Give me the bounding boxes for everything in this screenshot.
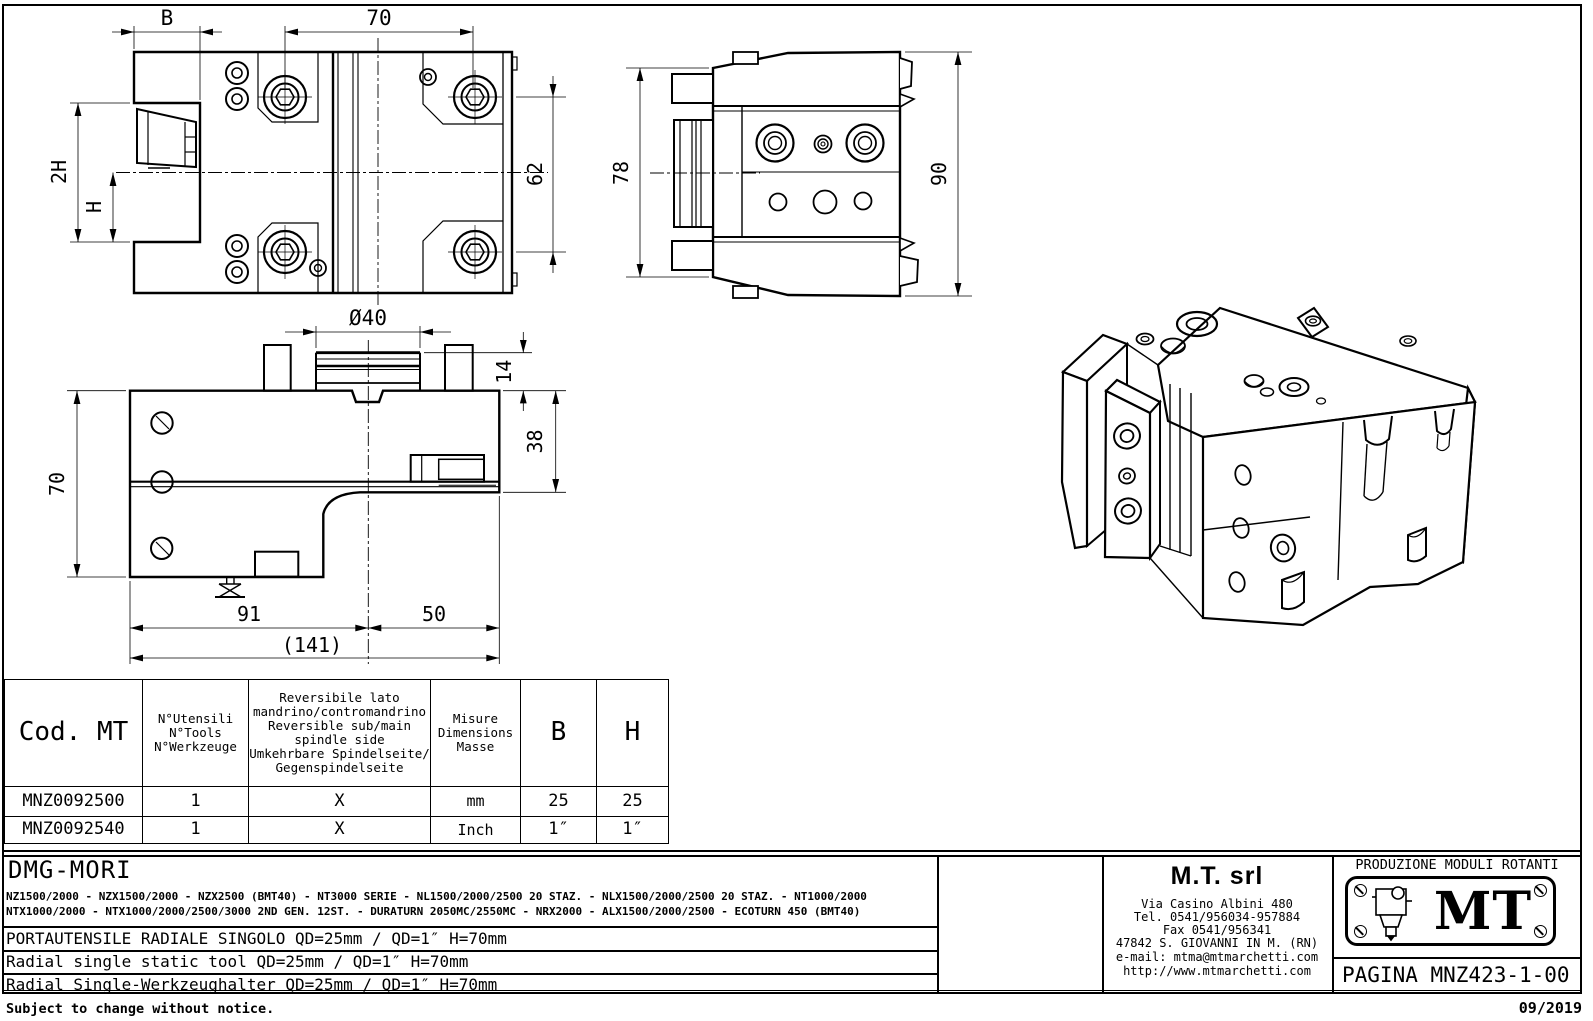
cell-h: 25 (597, 787, 669, 817)
production-label: PRODUZIONE MODULI ROTANTI (1334, 857, 1580, 873)
reversible-line: spindle side (249, 733, 430, 747)
cell-b: 25 (521, 787, 597, 817)
revision-date: 09/2019 (1450, 999, 1582, 1017)
cell-tools: 1 (143, 817, 249, 844)
logo-screw-icon (1354, 925, 1367, 938)
footer-note: Subject to change without notice. (6, 1001, 274, 1017)
socket-screw-icon (258, 70, 502, 279)
machine-list-line2: NTX1000/2000 - NTX1000/2000/2500/3000 2N… (6, 905, 860, 918)
cell-tools: 1 (143, 787, 249, 817)
cell-rev: X (249, 817, 431, 844)
side-view-outline (713, 52, 900, 296)
company-city: 47842 S. GIOVANNI IN M. (RN) (1102, 936, 1332, 950)
logo-screw-icon (1354, 884, 1367, 897)
dim-label-70: 70 (366, 6, 391, 30)
company-name: M.T. srl (1102, 862, 1332, 891)
col-header-b: B (521, 680, 597, 787)
iso-view (1030, 280, 1510, 650)
cell-cod: MNZ0092500 (5, 787, 143, 817)
side-holes (151, 412, 173, 559)
cell-cod: MNZ0092540 (5, 817, 143, 844)
company-fax: Fax 0541/956341 (1102, 923, 1332, 937)
reversible-line: mandrino/contromandrino (249, 705, 430, 719)
tools-line: N°Utensili (143, 712, 248, 726)
side-view: 78 90 (580, 10, 1000, 310)
dim-label-b: B (161, 6, 174, 30)
company-tel: Tel. 0541/956034-957884 (1102, 910, 1332, 924)
rotary-module-icon (1370, 883, 1414, 941)
clamp-pocket (411, 455, 496, 485)
dim-label-h: H (82, 201, 106, 213)
col-header-reversible: Reversibile lato mandrino/contromandrino… (249, 680, 431, 787)
dim-label-2h: 2H (47, 160, 71, 184)
measure-line: Masse (431, 740, 520, 754)
dimension-70 (285, 26, 473, 88)
tools-line: N°Tools (143, 726, 248, 740)
tools-line: N°Werkzeuge (143, 740, 248, 754)
cell-rev: X (249, 787, 431, 817)
adjust-screw-icon (215, 577, 245, 597)
cell-b: 1″ (521, 817, 597, 844)
dim-label-70-front: 70 (45, 472, 69, 496)
machine-list-line1: NZ1500/2000 - NZX1500/2000 - NZX2500 (BM… (6, 890, 867, 903)
logo-text: MT (1410, 881, 1556, 942)
dimension-70-front (67, 391, 126, 577)
iso-clamp-block (1105, 380, 1160, 558)
description-de: Radial Single-Werkzeughalter QD=25mm / Q… (6, 975, 497, 994)
dim-label-78: 78 (609, 161, 633, 185)
mt-logo: MT (1345, 876, 1556, 946)
dim-label-62: 62 (523, 162, 547, 186)
dim-label-38: 38 (523, 429, 547, 453)
top-view: B 70 2H H 62 (0, 0, 600, 320)
dim-label-dia40: Ø40 (349, 306, 387, 330)
cell-h: 1″ (597, 817, 669, 844)
iso-front-face (1203, 402, 1475, 625)
clamp-hooks (900, 58, 918, 286)
spec-table: Cod. MT N°Utensili N°Tools N°Werkzeuge R… (4, 679, 669, 844)
cell-unit: mm (431, 787, 521, 817)
reversible-line: Gegenspindelseite (249, 761, 430, 775)
page-number: PAGINA MNZ423-1-00 (1342, 963, 1570, 987)
dim-label-14: 14 (492, 360, 516, 384)
description-en: Radial single static tool QD=25mm / QD=1… (6, 952, 468, 971)
description-it: PORTAUTENSILE RADIALE SINGOLO QD=25mm / … (6, 929, 507, 948)
dimension-b (112, 26, 222, 100)
col-header-measure: Misure Dimensions Masse (431, 680, 521, 787)
dim-label-90: 90 (927, 162, 951, 186)
dim-label-50: 50 (422, 602, 446, 626)
cell-unit: Inch (431, 817, 521, 844)
customer-brand: DMG-MORI (8, 856, 132, 884)
measure-line: Misure (431, 712, 520, 726)
company-address: Via Casino Albini 480 (1102, 897, 1332, 911)
col-header-tools: N°Utensili N°Tools N°Werkzeuge (143, 680, 249, 787)
company-web: http://www.mtmarchetti.com (1102, 964, 1332, 978)
measure-line: Dimensions (431, 726, 520, 740)
front-view-outline (130, 391, 499, 577)
reversible-line: Reversibile lato (249, 691, 430, 705)
table-row: MNZ0092540 1 X Inch 1″ 1″ (5, 817, 669, 844)
reversible-line: Reversible sub/main (249, 719, 430, 733)
dim-label-141: (141) (282, 633, 342, 657)
front-view: Ø40 14 38 70 91 50 (141) (30, 300, 600, 680)
company-email: e-mail: mtma@mtmarchetti.com (1102, 950, 1332, 964)
col-header-h: H (597, 680, 669, 787)
wedge-clamp (137, 109, 196, 168)
table-row: MNZ0092500 1 X mm 25 25 (5, 787, 669, 817)
dim-label-91: 91 (237, 602, 261, 626)
col-header-cod: Cod. MT (5, 680, 143, 787)
reversible-line: Umkehrbare Spindelseite/ (249, 747, 430, 761)
